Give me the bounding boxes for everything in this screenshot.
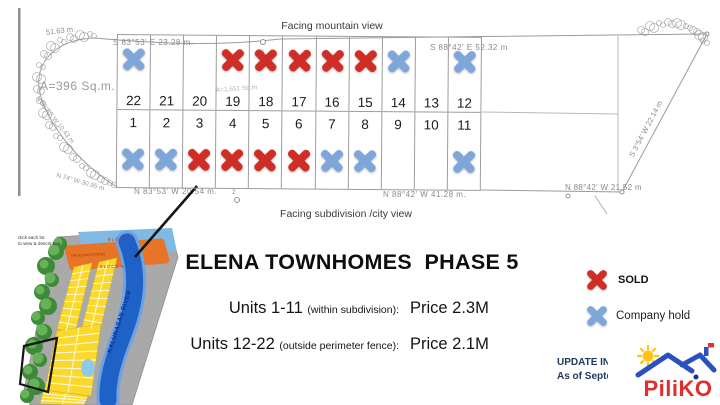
lot-14: 14 bbox=[382, 37, 416, 111]
bearing-left-arc-1: N 83°52' W 10.43 m bbox=[34, 94, 76, 145]
lot-number: 16 bbox=[316, 95, 348, 110]
map-pond bbox=[81, 359, 95, 377]
lot-2: 2 bbox=[150, 110, 184, 187]
lot-number: 13 bbox=[415, 95, 447, 110]
lot-number: 4 bbox=[217, 116, 249, 131]
company-hold-x-icon bbox=[453, 50, 477, 74]
lot-number: 21 bbox=[151, 93, 183, 108]
units-range: Units 1-11 bbox=[229, 299, 308, 317]
lot-number: 6 bbox=[283, 116, 315, 131]
lot-20: 20 bbox=[184, 36, 218, 110]
company-hold-x-icon bbox=[386, 49, 410, 73]
lot-number: 18 bbox=[250, 94, 282, 109]
lot-number: 8 bbox=[349, 117, 381, 132]
price-value: Price 2.3M bbox=[410, 299, 502, 318]
legend-hold-row: Company hold bbox=[585, 304, 690, 327]
company-hold-x-icon bbox=[452, 150, 476, 174]
lot-number: 20 bbox=[184, 94, 216, 109]
lot-1: 1 bbox=[117, 110, 151, 187]
price-row-label: Units 1-11 (within subdivision): bbox=[150, 299, 399, 318]
sold-x-icon bbox=[254, 48, 278, 72]
lot-7: 7 bbox=[315, 112, 349, 189]
lot-16: 16 bbox=[316, 37, 350, 111]
lot-number: 5 bbox=[250, 116, 282, 131]
sold-x-icon bbox=[585, 268, 608, 291]
lot-17: 17 bbox=[283, 36, 317, 110]
lot-number: 12 bbox=[448, 96, 480, 111]
chimney-icon bbox=[704, 347, 709, 356]
units-range: Units 12-22 bbox=[190, 335, 279, 353]
lot-number: 19 bbox=[217, 94, 249, 109]
site-map: click each lot to view & description BLO… bbox=[18, 186, 197, 405]
sold-x-icon bbox=[187, 148, 211, 172]
facing-subdivision-label: Facing subdivision /city view bbox=[266, 208, 426, 220]
page-title: ELENA TOWNHOMES PHASE 5 bbox=[178, 250, 526, 275]
map-block-label-bottom: BLOCK 8 bbox=[100, 264, 125, 269]
company-hold-x-icon bbox=[122, 47, 146, 71]
lot-number: 14 bbox=[382, 95, 414, 110]
lot-5: 5 bbox=[249, 111, 283, 188]
lot-number: 3 bbox=[183, 116, 215, 131]
lot-4: 4 bbox=[216, 111, 250, 188]
sold-x-icon bbox=[353, 49, 377, 73]
brand-name: PiliKO bbox=[643, 376, 712, 401]
lot-8: 8 bbox=[348, 112, 382, 189]
company-hold-x-icon bbox=[320, 149, 344, 173]
lot-number: 17 bbox=[283, 94, 315, 109]
lot-number: 22 bbox=[117, 93, 149, 108]
lot-number: 1 bbox=[117, 115, 149, 130]
facing-mountain-label: Facing mountain view bbox=[252, 20, 412, 32]
piliko-logo-graphic: PiliKO bbox=[608, 337, 720, 403]
company-hold-x-icon bbox=[585, 304, 608, 327]
lot-number: 10 bbox=[415, 117, 447, 132]
legend-sold-row: SOLD bbox=[585, 268, 649, 291]
bearing-right-diagonal: S 3°54' W 22.14 m bbox=[627, 99, 664, 158]
scan-edge-bar bbox=[18, 8, 21, 196]
lot-6: 6 bbox=[282, 111, 316, 188]
lot-number: 11 bbox=[448, 118, 480, 133]
company-hold-x-icon bbox=[154, 147, 178, 171]
lot-11: 11 bbox=[448, 113, 481, 190]
lot-number: 9 bbox=[382, 117, 414, 132]
units-qualifier: (outside perimeter fence): bbox=[279, 340, 399, 352]
map-caption-line1: click each lot bbox=[18, 235, 45, 240]
legend-hold-label: Company hold bbox=[616, 310, 690, 322]
bearing-left-arc-2: N 74° W 30.95 m bbox=[55, 171, 105, 192]
sold-x-icon bbox=[320, 49, 344, 73]
lot-13: 13 bbox=[415, 37, 449, 111]
sold-x-icon bbox=[286, 148, 310, 172]
price-row-label: Units 12-22 (outside perimeter fence): bbox=[150, 335, 399, 354]
bearing-bottom-right: N 88°42' W 21.52 m bbox=[565, 183, 642, 192]
lot-15: 15 bbox=[349, 37, 383, 111]
price-row-units-12-22: Units 12-22 (outside perimeter fence): P… bbox=[150, 335, 502, 354]
piliko-logo: PiliKO bbox=[608, 337, 720, 403]
lot-19: 19 bbox=[217, 36, 251, 110]
units-qualifier: (within subdivision): bbox=[307, 304, 399, 316]
lot-22: 22 bbox=[117, 35, 151, 109]
lot-row-bottom: 1234567891011 bbox=[117, 110, 481, 190]
lot-number: 7 bbox=[316, 117, 348, 132]
sold-x-icon bbox=[221, 48, 245, 72]
sold-x-icon bbox=[220, 148, 244, 172]
lot-21: 21 bbox=[151, 35, 185, 109]
survey-marker-2: 2 bbox=[232, 189, 236, 196]
lot-12: 12 bbox=[448, 38, 481, 112]
company-hold-x-icon bbox=[353, 149, 377, 173]
bearing-left-top: 51.63 m. bbox=[45, 24, 75, 36]
lot-number: 2 bbox=[150, 115, 182, 130]
flag-icon bbox=[708, 343, 714, 348]
company-hold-x-icon bbox=[121, 147, 145, 171]
map-caption-line2: to view & description bbox=[18, 241, 61, 246]
lot-row-top: 2221201918171615141312 bbox=[117, 35, 481, 113]
bearing-bottom-mid: N 88°42' W 41.28 m. bbox=[383, 190, 466, 199]
sold-x-icon bbox=[287, 48, 311, 72]
sold-x-icon bbox=[253, 148, 277, 172]
price-row-units-1-11: Units 1-11 (within subdivision): Price 2… bbox=[150, 299, 502, 318]
price-value: Price 2.1M bbox=[410, 335, 502, 354]
area-label-left: A=396 Sq.m. bbox=[40, 79, 115, 93]
lot-9: 9 bbox=[382, 112, 416, 189]
plat-lot-grid: 2221201918171615141312 1234567891011 bbox=[116, 34, 482, 191]
lot-3: 3 bbox=[183, 111, 217, 188]
real-estate-flyer: { "colors": { "sold": "#cf2e27", "hold":… bbox=[0, 0, 720, 405]
lot-18: 18 bbox=[250, 36, 284, 110]
lot-10: 10 bbox=[415, 112, 449, 189]
lot-number: 15 bbox=[349, 95, 381, 110]
legend-sold-label: SOLD bbox=[618, 274, 649, 286]
